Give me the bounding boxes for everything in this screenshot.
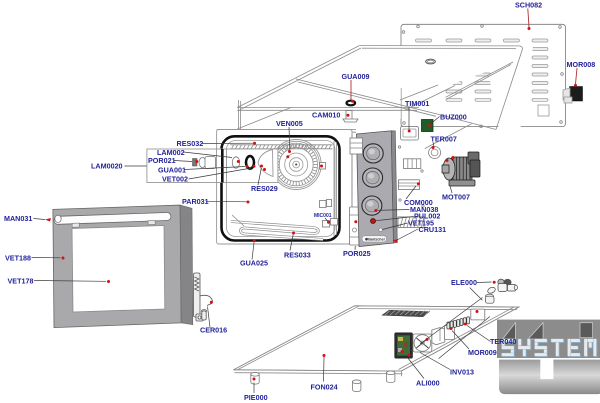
svg-text:TIM001: TIM001	[405, 99, 429, 108]
svg-text:CER016: CER016	[200, 326, 227, 335]
svg-text:ELE000: ELE000	[451, 278, 477, 287]
svg-text:BUZ000: BUZ000	[440, 113, 467, 122]
svg-text:POR021: POR021	[148, 156, 176, 165]
svg-text:SCH082: SCH082	[515, 1, 542, 10]
svg-text:RES032: RES032	[177, 139, 204, 148]
svg-text:MAN031: MAN031	[4, 214, 32, 223]
svg-text:GUA009: GUA009	[342, 72, 370, 81]
svg-text:VET002: VET002	[162, 175, 188, 184]
svg-text:MOR008: MOR008	[567, 60, 596, 69]
svg-text:VEN005: VEN005	[276, 119, 303, 128]
svg-text:POR025: POR025	[343, 249, 371, 258]
svg-text:TER040: TER040	[490, 337, 516, 346]
svg-text:VET188: VET188	[5, 254, 31, 263]
svg-text:TER007: TER007	[431, 135, 457, 144]
svg-text:ALI000: ALI000	[416, 379, 440, 388]
svg-text:MOR009: MOR009	[468, 348, 497, 357]
svg-text:⚈Bartscher: ⚈Bartscher	[365, 238, 386, 242]
svg-text:CRU131: CRU131	[419, 225, 447, 234]
svg-text:MIC001: MIC001	[314, 213, 332, 219]
svg-text:PIE000: PIE000	[244, 393, 268, 402]
svg-text:LAM0020: LAM0020	[91, 162, 123, 171]
svg-text:GUA001: GUA001	[158, 166, 186, 175]
svg-text:MOT007: MOT007	[442, 193, 470, 202]
svg-text:PAR031: PAR031	[182, 197, 209, 206]
svg-text:INV013: INV013	[450, 368, 474, 377]
svg-text:RES033: RES033	[284, 251, 311, 260]
svg-text:VET178: VET178	[8, 277, 34, 286]
svg-text:CAM010: CAM010	[312, 111, 340, 120]
svg-text:FON024: FON024	[311, 383, 338, 392]
svg-text:RES029: RES029	[251, 184, 278, 193]
svg-text:GUA025: GUA025	[240, 259, 268, 268]
